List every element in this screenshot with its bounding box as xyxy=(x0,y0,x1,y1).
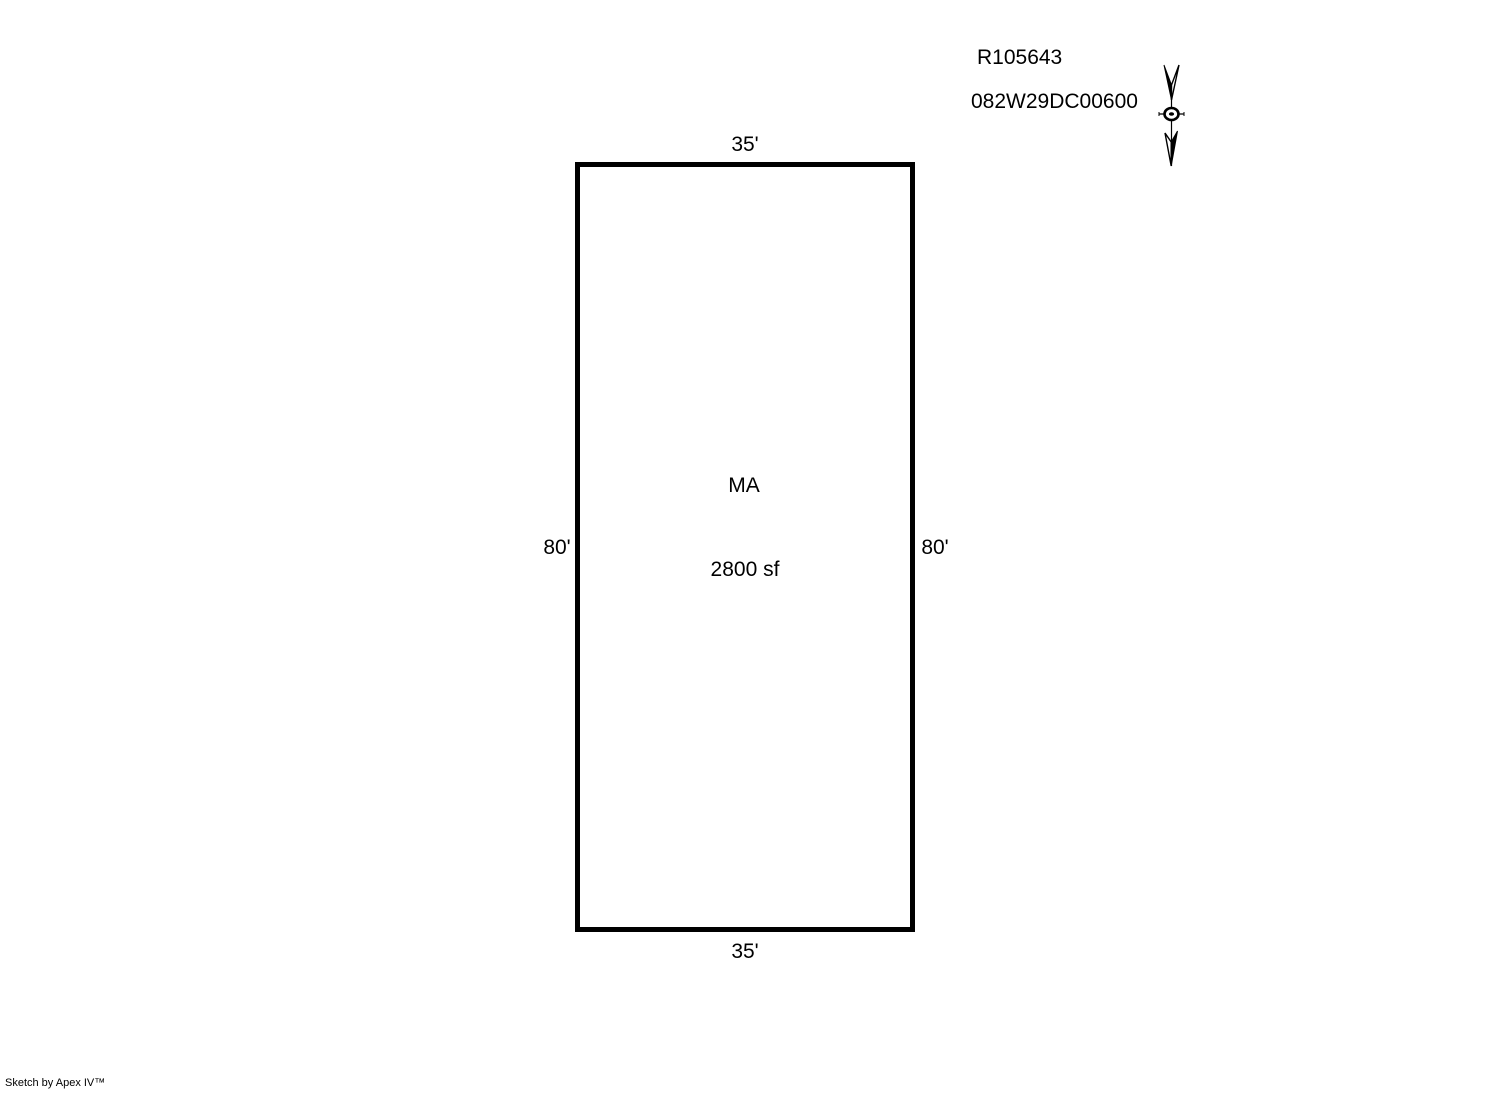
area-code-label: MA xyxy=(728,474,760,497)
parcel-outline xyxy=(575,162,915,932)
dimension-bottom: 35' xyxy=(731,940,758,963)
north-arrow-icon xyxy=(1157,62,1189,170)
footer-branding: Sketch by Apex IV™ xyxy=(5,1077,105,1089)
dimension-left: 80' xyxy=(543,536,570,559)
area-size-label: 2800 sf xyxy=(711,558,780,581)
map-taxlot-number: 082W29DC00600 xyxy=(971,90,1138,113)
dimension-right: 80' xyxy=(921,536,948,559)
dimension-top: 35' xyxy=(731,133,758,156)
account-number: R105643 xyxy=(977,46,1062,69)
